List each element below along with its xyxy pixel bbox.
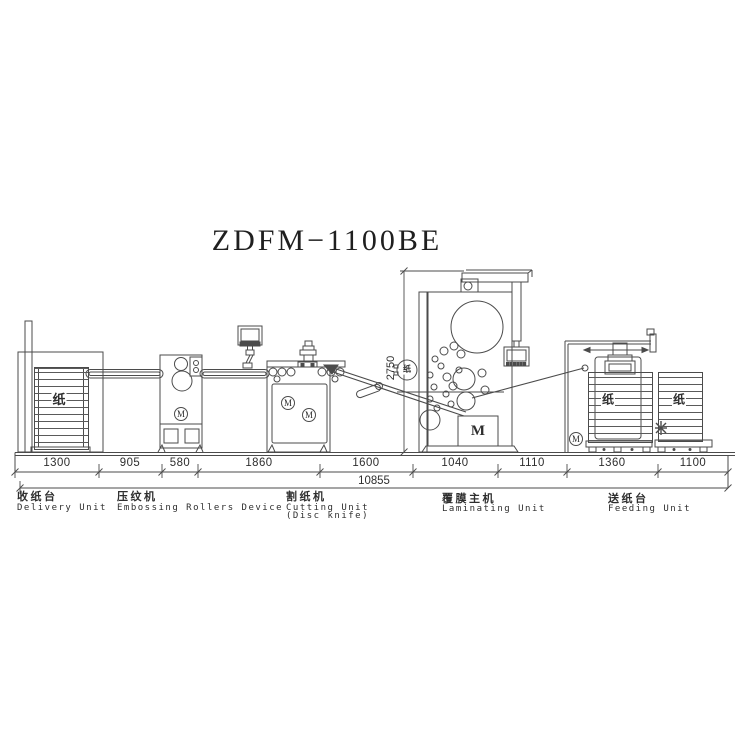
delivery-mast <box>25 321 32 452</box>
side-post <box>650 334 656 352</box>
embossing-top-roller <box>175 358 188 371</box>
label-zh-delivery: 收纸台 <box>17 488 58 504</box>
motor-label-embossing: M <box>174 408 188 421</box>
traverse-arrow <box>584 348 648 353</box>
panel-column <box>512 282 521 341</box>
dim-905: 905 <box>118 456 142 469</box>
label-en-delivery: Delivery Unit <box>17 503 107 513</box>
dim-1860: 1860 <box>243 456 274 469</box>
label-en-embossing: Embossing Rollers Device <box>117 503 283 513</box>
label-zh-embossing: 压纹机 <box>117 488 158 504</box>
motor-label-cutting-2: M <box>302 409 316 422</box>
operator-panel <box>504 347 529 366</box>
heating-drum <box>451 301 503 353</box>
motor-label-feeding: M <box>569 433 583 446</box>
dim-1300: 1300 <box>41 456 72 469</box>
web-path <box>330 367 584 416</box>
label-zh-cutting: 割纸机 <box>286 488 327 504</box>
film-roll-glyph: 纸 <box>403 366 411 375</box>
dim-height-2750: 2750 <box>385 356 397 380</box>
machine-line-diagram: 纸 纸 纸 纸 M M M M M ZDFM−1100BE 1300 905 5… <box>0 0 750 750</box>
guide-roller-large <box>420 410 440 430</box>
paper-glyph-delivery: 纸 <box>51 393 66 407</box>
dim-1360: 1360 <box>596 456 627 469</box>
label-en-cutting-2: (Disc knife) <box>286 511 369 521</box>
dim-1110: 1110 <box>517 456 546 469</box>
motor-label-cutting-1: M <box>281 397 295 410</box>
tension-lever <box>356 383 382 398</box>
disc-knife <box>298 341 317 367</box>
press-roller-2 <box>457 392 475 410</box>
delivery-paper-stack <box>34 367 89 450</box>
dim-1600: 1600 <box>350 456 381 469</box>
embossing-unit <box>158 355 203 452</box>
label-en-laminating: Laminating Unit <box>442 504 546 514</box>
model-title: ZDFM−1100BE <box>212 224 443 258</box>
dim-total-10855: 10855 <box>356 474 392 486</box>
embossing-main-roller <box>172 371 192 391</box>
control-monitor <box>238 326 262 368</box>
height-dimension-line <box>400 268 464 456</box>
conveyor-bridge-1 <box>86 370 163 379</box>
label-en-feeding: Feeding Unit <box>608 504 691 514</box>
dim-1040: 1040 <box>439 456 470 469</box>
suction-head <box>605 343 635 374</box>
paper-glyph-feed-2: 纸 <box>672 393 686 406</box>
dim-1100: 1100 <box>678 456 708 469</box>
dim-580: 580 <box>168 456 192 469</box>
conveyor-bridge-2 <box>200 370 269 379</box>
feeding-paper-stack-2 <box>658 372 703 442</box>
motor-label-laminating: M <box>468 423 488 440</box>
paper-glyph-feed-1: 纸 <box>601 393 615 406</box>
feeding-paper-stack-1 <box>588 372 653 443</box>
